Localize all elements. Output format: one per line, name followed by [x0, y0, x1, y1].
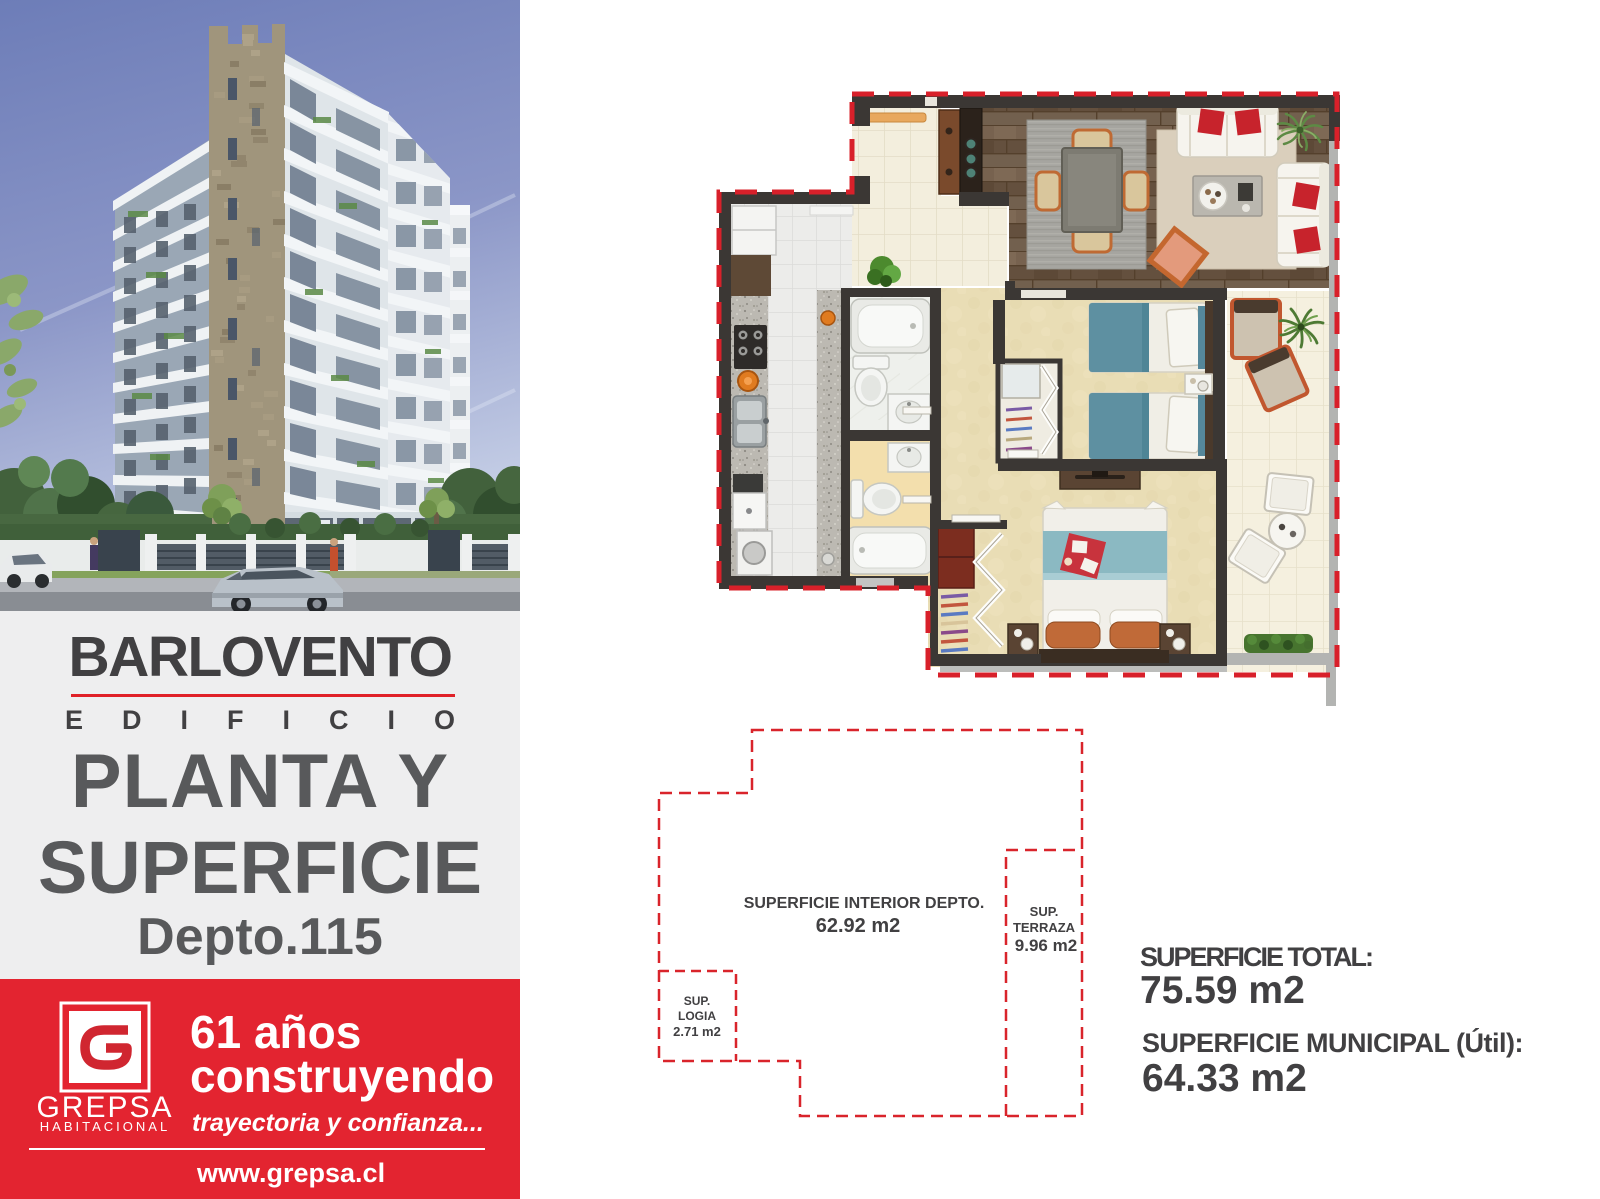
svg-text:TERRAZA: TERRAZA: [1013, 920, 1076, 935]
svg-text:2.71 m2: 2.71 m2: [673, 1024, 721, 1039]
svg-text:LOGIA: LOGIA: [678, 1009, 716, 1023]
svg-text:SUPERFICIE INTERIOR DEPTO.: SUPERFICIE INTERIOR DEPTO.: [744, 895, 985, 912]
svg-text:SUP.: SUP.: [1030, 904, 1059, 919]
svg-text:9.96 m2: 9.96 m2: [1015, 936, 1077, 955]
svg-text:62.92 m2: 62.92 m2: [816, 915, 901, 937]
svg-text:SUP.: SUP.: [684, 994, 710, 1008]
